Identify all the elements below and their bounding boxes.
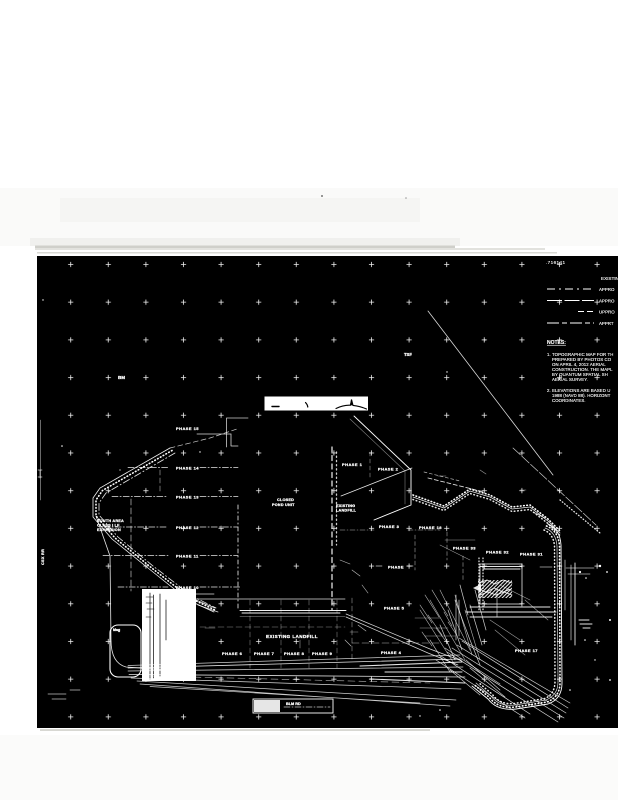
- svg-text:LANDFILL: LANDFILL: [336, 509, 357, 513]
- svg-text:EXISTING: EXISTING: [336, 504, 355, 508]
- svg-text:PHASE 6: PHASE 6: [222, 651, 243, 656]
- svg-text:NOTES:: NOTES:: [547, 340, 566, 346]
- svg-text:PHASE 15: PHASE 15: [176, 426, 199, 431]
- svg-text:PHASE 31: PHASE 31: [520, 552, 543, 557]
- svg-text:POND UNIT: POND UNIT: [272, 503, 295, 507]
- svg-text:PHASE 11: PHASE 11: [176, 554, 199, 559]
- svg-text:BLM RD: BLM RD: [286, 702, 301, 706]
- svg-text:APPRT: APPRT: [599, 321, 614, 326]
- svg-text:COORDINATES.: COORDINATES.: [552, 398, 586, 403]
- svg-text:BM: BM: [118, 375, 125, 380]
- svg-text:CSX RR: CSX RR: [41, 549, 45, 565]
- svg-text:SOUTH AREA: SOUTH AREA: [97, 519, 124, 523]
- svg-text:PHASE 8: PHASE 8: [284, 651, 305, 656]
- svg-text:PHASE 17: PHASE 17: [515, 648, 538, 653]
- svg-text:EXISTIN: EXISTIN: [601, 276, 618, 281]
- svg-text:APPRO: APPRO: [599, 299, 615, 304]
- svg-text:PHASE 14: PHASE 14: [176, 466, 199, 471]
- svg-text:TSF: TSF: [404, 352, 412, 357]
- svg-text:PHASE 7: PHASE 7: [254, 651, 275, 656]
- svg-text:EXISTING LANDFILL: EXISTING LANDFILL: [266, 634, 318, 639]
- svg-text:PHASE 12: PHASE 12: [176, 525, 199, 530]
- svg-text:PHASE 18: PHASE 18: [419, 525, 442, 530]
- svg-text:PHASE 3: PHASE 3: [379, 524, 400, 529]
- svg-text:PHASE 33: PHASE 33: [453, 546, 476, 551]
- svg-text:AERIAL SURVEY.: AERIAL SURVEY.: [552, 377, 588, 382]
- svg-text:PHASE 32: PHASE 32: [486, 550, 509, 555]
- svg-text:.716141: .716141: [546, 260, 565, 265]
- svg-text:Mag: Mag: [113, 628, 120, 632]
- svg-text:APPRO: APPRO: [599, 287, 615, 292]
- svg-text:CLOSED: CLOSED: [277, 498, 294, 502]
- svg-text:PHASE 1: PHASE 1: [342, 462, 363, 467]
- svg-text:CLASS I LF: CLASS I LF: [97, 524, 120, 528]
- svg-text:PHASE 5: PHASE 5: [384, 606, 405, 611]
- svg-text:PHASE: PHASE: [388, 565, 404, 570]
- svg-text:PHASE 9: PHASE 9: [312, 651, 333, 656]
- svg-text:PHASE 2: PHASE 2: [378, 467, 399, 472]
- svg-text:UPPRO: UPPRO: [599, 310, 615, 315]
- svg-text:PHASE 13: PHASE 13: [176, 495, 199, 500]
- svg-text:PHASE 4: PHASE 4: [381, 650, 402, 655]
